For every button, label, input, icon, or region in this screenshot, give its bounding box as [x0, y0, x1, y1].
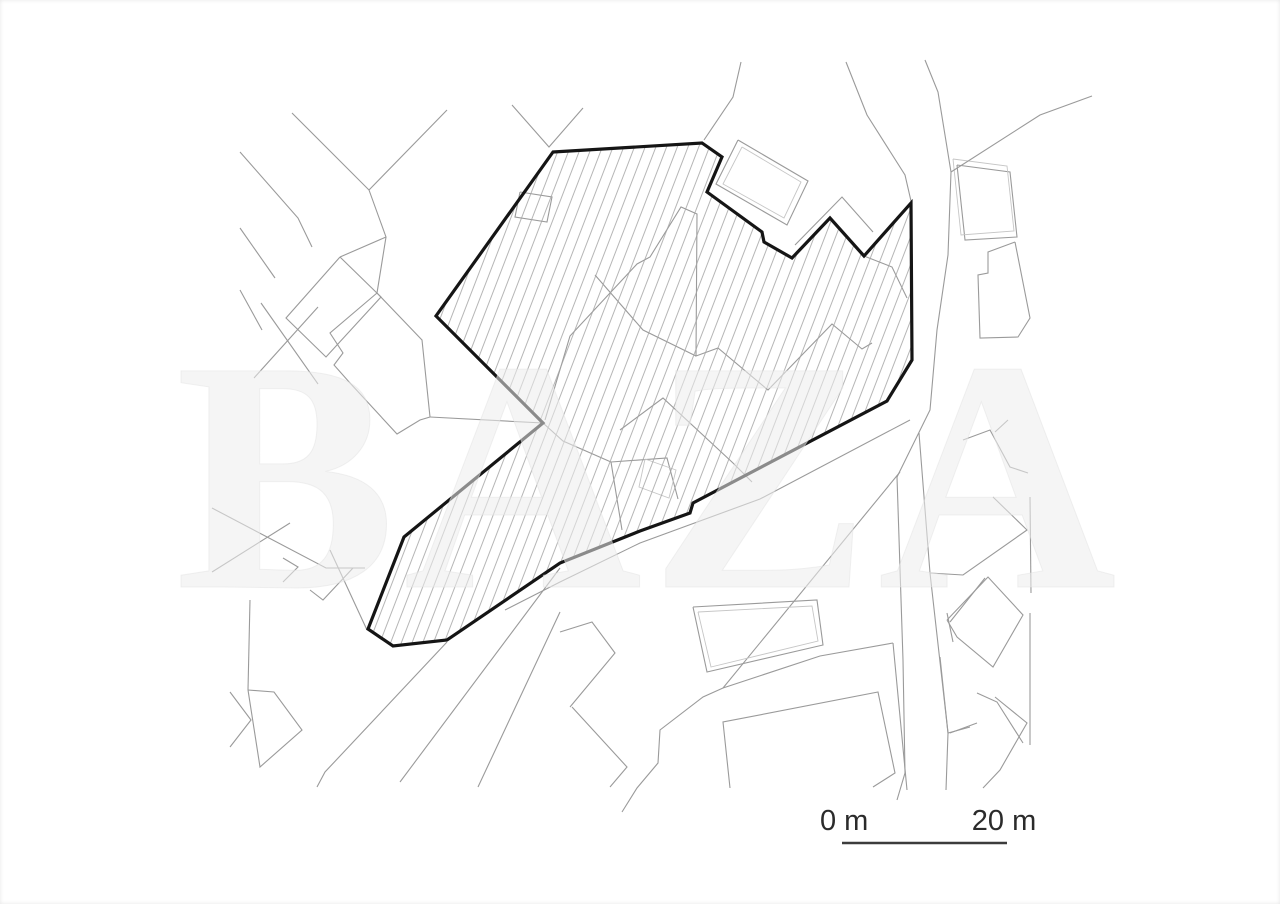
map-line: [953, 159, 1014, 235]
map-line: [951, 96, 1092, 172]
map-line: [622, 643, 893, 812]
map-line: [317, 642, 447, 787]
map-line: [512, 105, 583, 147]
map-line: [704, 62, 741, 140]
map-line: [240, 228, 275, 278]
map-line: [340, 237, 386, 257]
map-line: [846, 62, 911, 201]
site-plan: BAZA 0 m 20 m: [0, 0, 1280, 904]
map-line: [240, 152, 312, 247]
map-line: [248, 690, 302, 767]
map-line: [723, 692, 895, 788]
map-line: [369, 110, 447, 190]
scale-bar-end-label: 20 m: [972, 805, 1036, 837]
scale-bar-start-label: 0 m: [820, 805, 868, 837]
watermark-text: BAZA: [176, 294, 1125, 659]
map-line: [572, 707, 627, 787]
map-line: [292, 113, 386, 293]
map-line: [950, 723, 977, 733]
map-line: [983, 697, 1027, 788]
scale-bar: 0 m 20 m: [820, 805, 1036, 843]
map-line: [723, 147, 801, 218]
map-line: [940, 657, 970, 733]
map-line: [230, 692, 251, 747]
drawing-page: BAZA 0 m 20 m: [0, 0, 1280, 904]
